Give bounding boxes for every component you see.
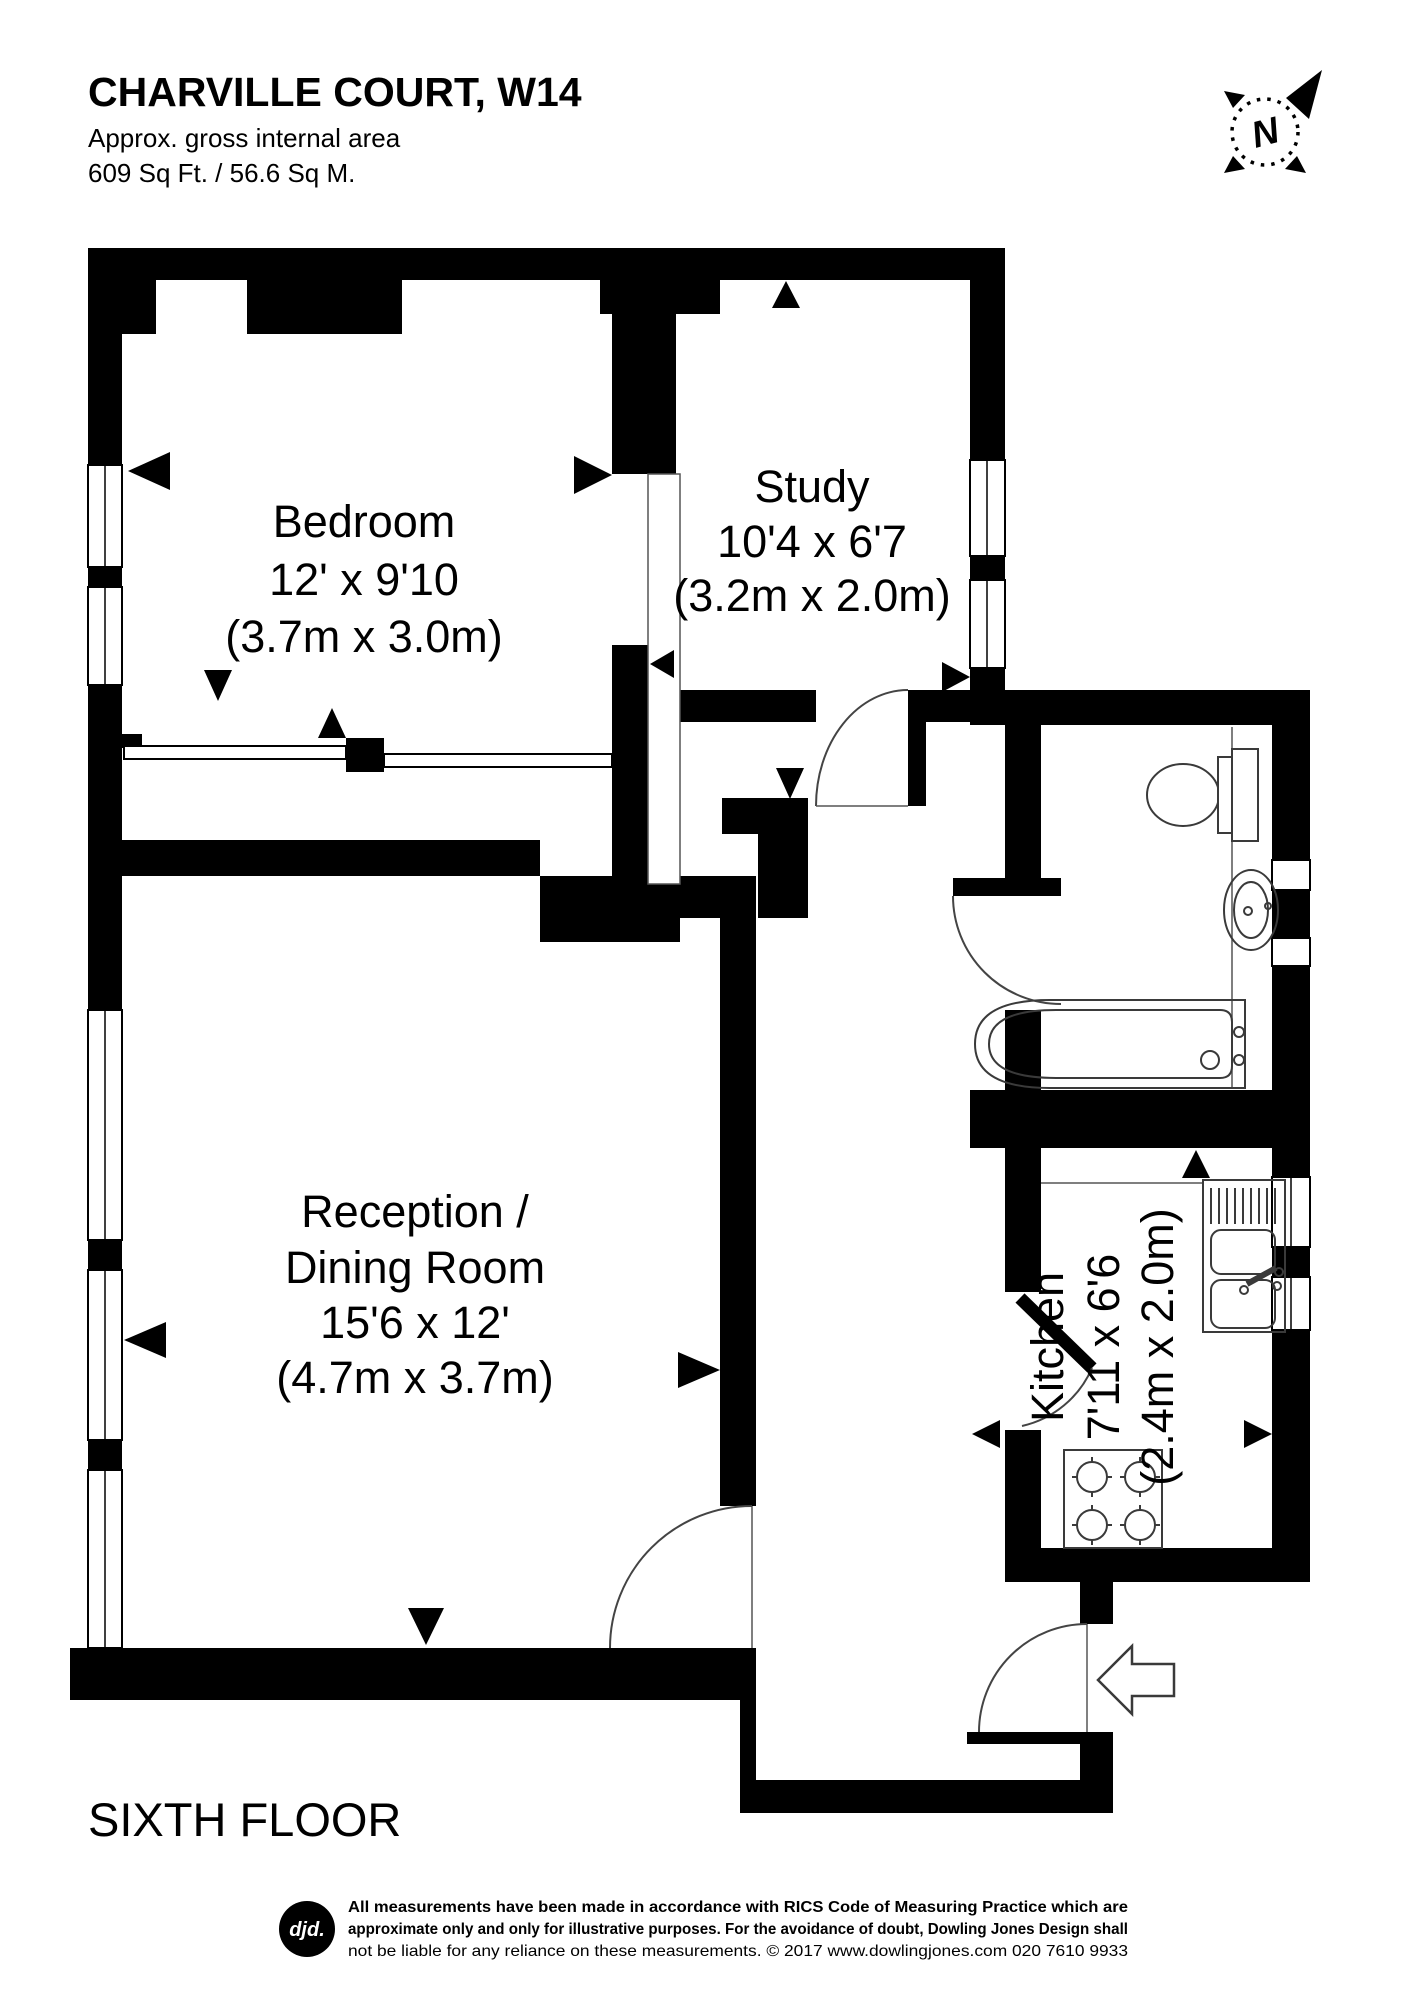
compass-north-arrow-icon [1286, 70, 1322, 119]
window-symbol [970, 580, 1005, 668]
room-dimensions-metric: (3.7m x 3.0m) [225, 611, 503, 662]
room-name: Study [754, 461, 870, 512]
wall-segment [740, 1780, 1113, 1813]
room-dimensions-metric: (2.4m x 2.0m) [1132, 1208, 1183, 1486]
wall-segment [70, 1648, 756, 1700]
room-dimensions-imperial: 10'4 x 6'7 [717, 516, 907, 567]
measure-arrow-icon [318, 708, 346, 738]
header-area: 609 Sq Ft. / 56.6 Sq M. [88, 158, 355, 188]
room-label-kitchen: Kitchen 7'11 x 6'6 (2.4m x 2.0m) [1022, 1208, 1183, 1486]
compass-sw-arrow-icon [1224, 156, 1245, 173]
header: CHARVILLE COURT, W14 Approx. gross inter… [88, 69, 582, 188]
wall-segment [1005, 725, 1041, 878]
room-name: Bedroom [273, 496, 456, 547]
door-leaf [908, 690, 926, 806]
page-title: CHARVILLE COURT, W14 [88, 69, 582, 115]
window-symbol [88, 1010, 122, 1240]
room-dimensions-imperial: 15'6 x 12' [320, 1297, 510, 1348]
window-symbol [88, 1270, 122, 1440]
window-symbol [88, 465, 122, 567]
wall-segment [926, 690, 970, 722]
door-swing-reception [610, 1506, 752, 1648]
compass-nw-arrow-icon [1224, 91, 1245, 108]
disclaimer-line: All measurements have been made in accor… [348, 1899, 1128, 1916]
wall-segment [970, 280, 1005, 460]
room-dimensions-metric: (4.7m x 3.7m) [276, 1352, 554, 1403]
window-symbol [88, 1470, 122, 1648]
door-swing-study [816, 690, 908, 806]
disclaimer-line: not be liable for any reliance on these … [348, 1943, 1128, 1960]
door-swing-bathroom [953, 896, 1061, 1004]
wall-segment [88, 248, 1005, 280]
footer: djd. All measurements have been made in … [279, 1899, 1128, 1960]
measure-arrow-icon [574, 456, 612, 494]
room-name: Dining Room [285, 1242, 545, 1293]
entrance-arrow-icon [1098, 1646, 1174, 1714]
measure-arrow-icon [1244, 1420, 1272, 1448]
wall-segment [1272, 1148, 1310, 1177]
wall-segment [1005, 690, 1310, 725]
measure-arrow-icon [128, 452, 170, 490]
room-label-study: Study 10'4 x 6'7 (3.2m x 2.0m) [673, 461, 951, 621]
floor-plan: CHARVILLE COURT, W14 Approx. gross inter… [0, 0, 1411, 2000]
wardrobe-symbol [124, 746, 346, 759]
window-symbol [1272, 1177, 1310, 1247]
window-symbol [1272, 1277, 1310, 1330]
wall-segment [970, 668, 1005, 725]
wall-segment [600, 280, 720, 314]
wall-segment [970, 556, 1005, 580]
wall-segment [88, 1440, 122, 1470]
window-symbol [1272, 938, 1310, 966]
wall-segment [88, 875, 122, 1010]
walls [70, 248, 1310, 1813]
wardrobe-symbol [384, 754, 612, 767]
wall-segment [758, 834, 808, 918]
floor-label: SIXTH FLOOR [88, 1793, 401, 1846]
wall-segment [722, 798, 808, 834]
window-symbol [1272, 860, 1310, 890]
window-symbol [88, 587, 122, 685]
room-dimensions-metric: (3.2m x 2.0m) [673, 570, 951, 621]
wall-segment [1005, 1548, 1310, 1582]
wall-segment [1005, 1148, 1041, 1292]
wall-segment [88, 334, 122, 465]
wall-segment [740, 1700, 756, 1780]
measure-arrow-icon [972, 1420, 1000, 1448]
header-subtitle: Approx. gross internal area [88, 123, 401, 153]
wall-segment [88, 840, 540, 876]
drainboard-lines [1211, 1188, 1275, 1224]
room-label-reception: Reception / Dining Room 15'6 x 12' (4.7m… [276, 1186, 554, 1403]
wall-segment [540, 918, 680, 942]
wall-segment [1272, 725, 1310, 860]
wall-segment [346, 738, 384, 772]
window-symbol [970, 460, 1005, 556]
wall-segment [1272, 1330, 1310, 1582]
measure-arrow-icon [1182, 1150, 1210, 1178]
wall-segment [88, 567, 122, 587]
floorplan-page: CHARVILLE COURT, W14 Approx. gross inter… [0, 0, 1411, 2000]
wall-segment [612, 645, 648, 885]
room-label-bedroom: Bedroom 12' x 9'10 (3.7m x 3.0m) [225, 496, 503, 662]
wall-segment [970, 1090, 1310, 1148]
measure-arrow-icon [942, 662, 970, 692]
toilet-icon [1147, 749, 1258, 841]
measure-arrow-icon [124, 1322, 166, 1358]
measure-arrow-icon [204, 670, 232, 701]
door-swing-entrance [979, 1624, 1087, 1732]
disclaimer-line: approximate only and only for illustrati… [348, 1921, 1128, 1938]
wall-segment [1080, 1732, 1113, 1780]
compass-north-label: N [1247, 109, 1285, 156]
djd-logo-text: djd. [289, 1919, 325, 1941]
compass-icon: N [1224, 70, 1322, 173]
wall-segment [676, 690, 816, 722]
wall-segment [967, 1732, 1080, 1744]
measure-arrow-icon [772, 281, 800, 308]
wall-segment [720, 876, 756, 1506]
measure-arrow-icon [408, 1608, 444, 1645]
room-name: Reception / [301, 1186, 529, 1237]
wall-segment [88, 280, 156, 334]
room-name: Kitchen [1022, 1272, 1073, 1422]
door-leaf [953, 878, 1061, 896]
room-dimensions-imperial: 7'11 x 6'6 [1078, 1254, 1129, 1440]
compass-se-arrow-icon [1285, 156, 1306, 173]
room-dimensions-imperial: 12' x 9'10 [269, 554, 459, 605]
wall-segment [1080, 1582, 1113, 1624]
wall-segment [612, 314, 676, 474]
bedroom-door-recess [648, 474, 680, 884]
wall-segment [88, 1240, 122, 1270]
measure-arrow-icon [776, 768, 804, 799]
wall-segment [1272, 1247, 1310, 1277]
measure-arrow-icon [678, 1352, 720, 1388]
